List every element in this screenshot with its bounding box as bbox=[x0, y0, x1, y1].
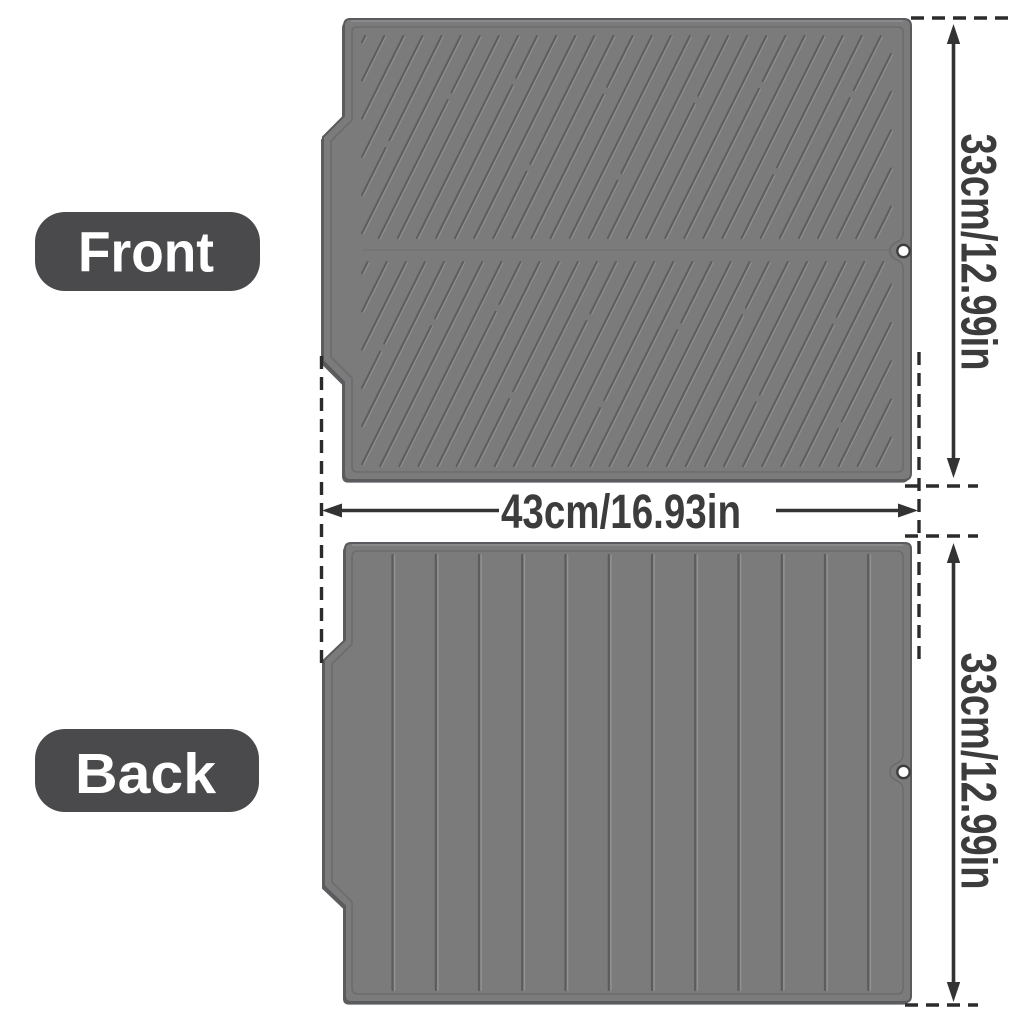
svg-text:33cm/12.99in: 33cm/12.99in bbox=[951, 653, 1007, 890]
svg-text:43cm/16.93in: 43cm/16.93in bbox=[501, 486, 741, 539]
svg-text:33cm/12.99in: 33cm/12.99in bbox=[951, 134, 1007, 371]
svg-text:Front: Front bbox=[78, 221, 214, 285]
svg-text:Back: Back bbox=[75, 742, 216, 806]
